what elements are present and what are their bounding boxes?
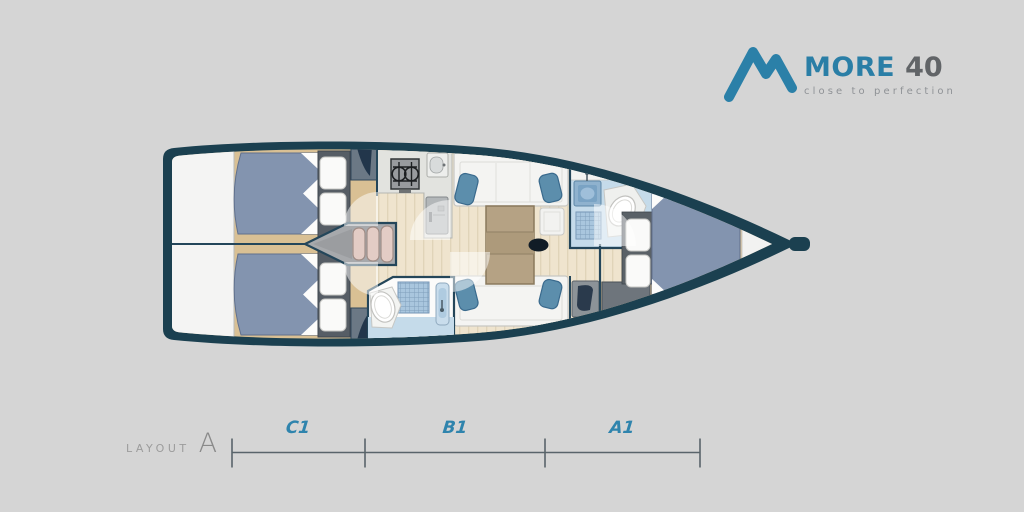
brand-tagline: close to perfection xyxy=(804,86,956,97)
pillow xyxy=(320,299,346,331)
layout-label: LAYOUT A xyxy=(126,430,217,457)
layout-variant: A xyxy=(199,430,217,457)
brand-logo: MORE 40 close to perfection xyxy=(722,44,956,104)
pillow xyxy=(320,263,346,295)
transom-platform xyxy=(164,144,234,348)
section-label-c1: C1 xyxy=(267,418,329,438)
mountain-m-icon xyxy=(722,44,800,104)
layout-word: LAYOUT xyxy=(126,442,190,455)
pillow xyxy=(320,157,346,189)
bow-nub xyxy=(789,237,810,251)
brand-model: 40 xyxy=(905,52,943,83)
section-label-b1: B1 xyxy=(424,418,486,438)
section-label-a1: A1 xyxy=(591,418,653,438)
brand-name: MORE xyxy=(804,52,895,83)
pillow xyxy=(626,255,650,287)
mast-post xyxy=(529,239,549,252)
pillow xyxy=(320,193,346,225)
step xyxy=(353,228,365,260)
head-shelf xyxy=(610,148,640,166)
stove-handle xyxy=(399,190,411,193)
aft-head xyxy=(367,277,454,345)
step xyxy=(367,227,379,261)
page-canvas: MORE 40 close to perfection LAYOUT A C1 … xyxy=(0,0,1024,512)
step xyxy=(381,226,393,262)
